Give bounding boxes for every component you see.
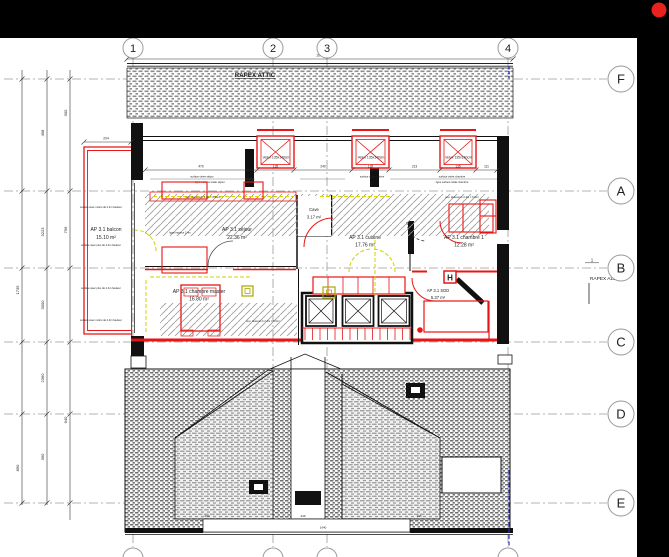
ann-ligne-surface-chambre: ligne surface totale chambre [436, 180, 469, 184]
grid-bubble-row-b: B [617, 261, 626, 276]
room-label-balcon-name: AP 3.1 balcon [90, 227, 121, 233]
dim-left-890: 890 [15, 464, 20, 471]
dim-left-1735: 1735 [15, 285, 20, 295]
roof-plan: 204 246 145 1640 [125, 354, 513, 551]
grid-bubble-row-d: D [616, 407, 625, 422]
record-indicator-dot [652, 3, 667, 18]
floor-plan-viewport: 1735 890 498 3223 3000 2360 390 300 756 … [0, 0, 669, 557]
room-label-chambre1-area: 12.28 m² [454, 243, 474, 249]
dim-balcon-204: 204 [103, 137, 109, 141]
dim-bottom-204: 204 [204, 514, 209, 518]
grid-bubble-col-2: 2 [270, 43, 276, 55]
room-label-cave-area: 3.17 m² [307, 215, 322, 220]
dim-bottom-145: 145 [416, 514, 421, 518]
ann-surface-vitree-chambre: surface vitrée chambre [439, 175, 466, 179]
dim-left-498: 498 [40, 129, 45, 136]
attic-title: RAPEX ATTIC [235, 72, 276, 79]
room-label-sdd-name: AP 3.1 SDD [427, 288, 450, 293]
section-ref-number: 1 [591, 258, 594, 263]
ann-sup-dessous-master: sup. dessous h 2.4m = 6.3m² [246, 319, 280, 323]
velux-window-1 [257, 136, 294, 168]
ann-surface-vitree-cuisine: surface vitrée cuisine [360, 175, 385, 179]
velux-label-2: Velux 135x140cm [358, 156, 385, 160]
velux-label-3: Velux 135x140cm [445, 156, 472, 160]
dim-win-135c: 135 [455, 165, 461, 169]
ann-haut-moins-1: surface avec moins de 2.4m hauteur [80, 205, 122, 209]
dim-left-640: 640 [63, 416, 68, 423]
left-dimension-chains: 1735 890 498 3223 3000 2360 390 300 756 … [15, 70, 73, 520]
dim-left-756: 756 [63, 226, 68, 233]
dim-left-300: 300 [63, 109, 68, 116]
room-label-balcon-area: 15.10 m² [96, 235, 116, 241]
dim-left-3223: 3223 [40, 227, 45, 237]
ann-sup-dessous-sejour: sup. dessous h 2.4m = 6.96m² [186, 195, 221, 199]
room-label-sejour-name: AP 3.1 séjour [222, 227, 252, 233]
dim-win-213: 213 [412, 165, 418, 169]
dim-left-390: 390 [40, 453, 45, 460]
room-label-chambre1-name: AP 3.1 chambre 1 [444, 235, 484, 241]
attic-roof-band: 1602 RAPEX ATTIC [125, 54, 516, 119]
grid-bubble-col-4: 4 [505, 43, 511, 55]
room-label-master-area: 16.80 m² [189, 297, 209, 303]
grid-bubble-row-c: C [616, 335, 625, 350]
dim-left-2360: 2360 [40, 373, 45, 383]
room-label-cuisine-name: AP 3.1 cuisine [349, 235, 381, 241]
hydrant-letter: H [447, 274, 453, 283]
elevator-core [302, 277, 423, 343]
dim-win-111: 111 [484, 165, 489, 169]
grid-bubble-row-a: A [617, 184, 626, 199]
ann-haut-plus-1: surface avec plus de 2.4m hauteur [81, 243, 121, 247]
room-label-cuisine-area: 17.76 m² [355, 243, 375, 249]
dim-bottom-1640: 1640 [320, 526, 327, 530]
grid-bubble-row-f: F [617, 72, 625, 87]
room-label-master-name: AP 3.1 chambre master [173, 289, 226, 295]
room-label-sdd-area: 5.37 m² [431, 295, 446, 300]
grid-bubble-col-3: 3 [324, 43, 330, 55]
ann-haut-plus-2: surface avec plus de 2.4m hauteur [81, 286, 121, 290]
hydrant-symbol: H [444, 271, 456, 283]
velux-windows [257, 136, 476, 168]
ann-ligne-hauteur: ligne hauteur 2.4m [169, 231, 191, 235]
grid-bubble-col-1: 1 [130, 43, 136, 55]
velux-window-2 [352, 136, 389, 168]
velux-window-3 [440, 136, 476, 168]
room-label-cave-name: Cave [309, 207, 319, 212]
dim-win-135b: 135 [368, 165, 374, 169]
right-black-bar [637, 0, 669, 557]
ann-haut-moins-2: surface avec moins de 2.4m hauteur [80, 318, 122, 322]
dim-win-470: 470 [198, 165, 204, 169]
ann-surface-vitree-sejour: surface vitrée séjour [190, 175, 213, 179]
top-black-bar [0, 0, 669, 38]
dim-win-135a: 135 [273, 165, 279, 169]
grid-bubble-row-e: E [617, 496, 626, 511]
dim-bottom-246: 246 [300, 514, 305, 518]
dim-win-240: 240 [320, 165, 326, 169]
ann-sup-dessous-chambre: sup. dessous h 2.4m = 6.3m² [445, 195, 479, 199]
dim-left-3000: 3000 [40, 300, 45, 310]
velux-label-1: Velux 135x140cm [263, 156, 290, 160]
stair-marker-dot [417, 327, 423, 333]
room-label-sejour-area: 22.36 m² [227, 235, 247, 241]
